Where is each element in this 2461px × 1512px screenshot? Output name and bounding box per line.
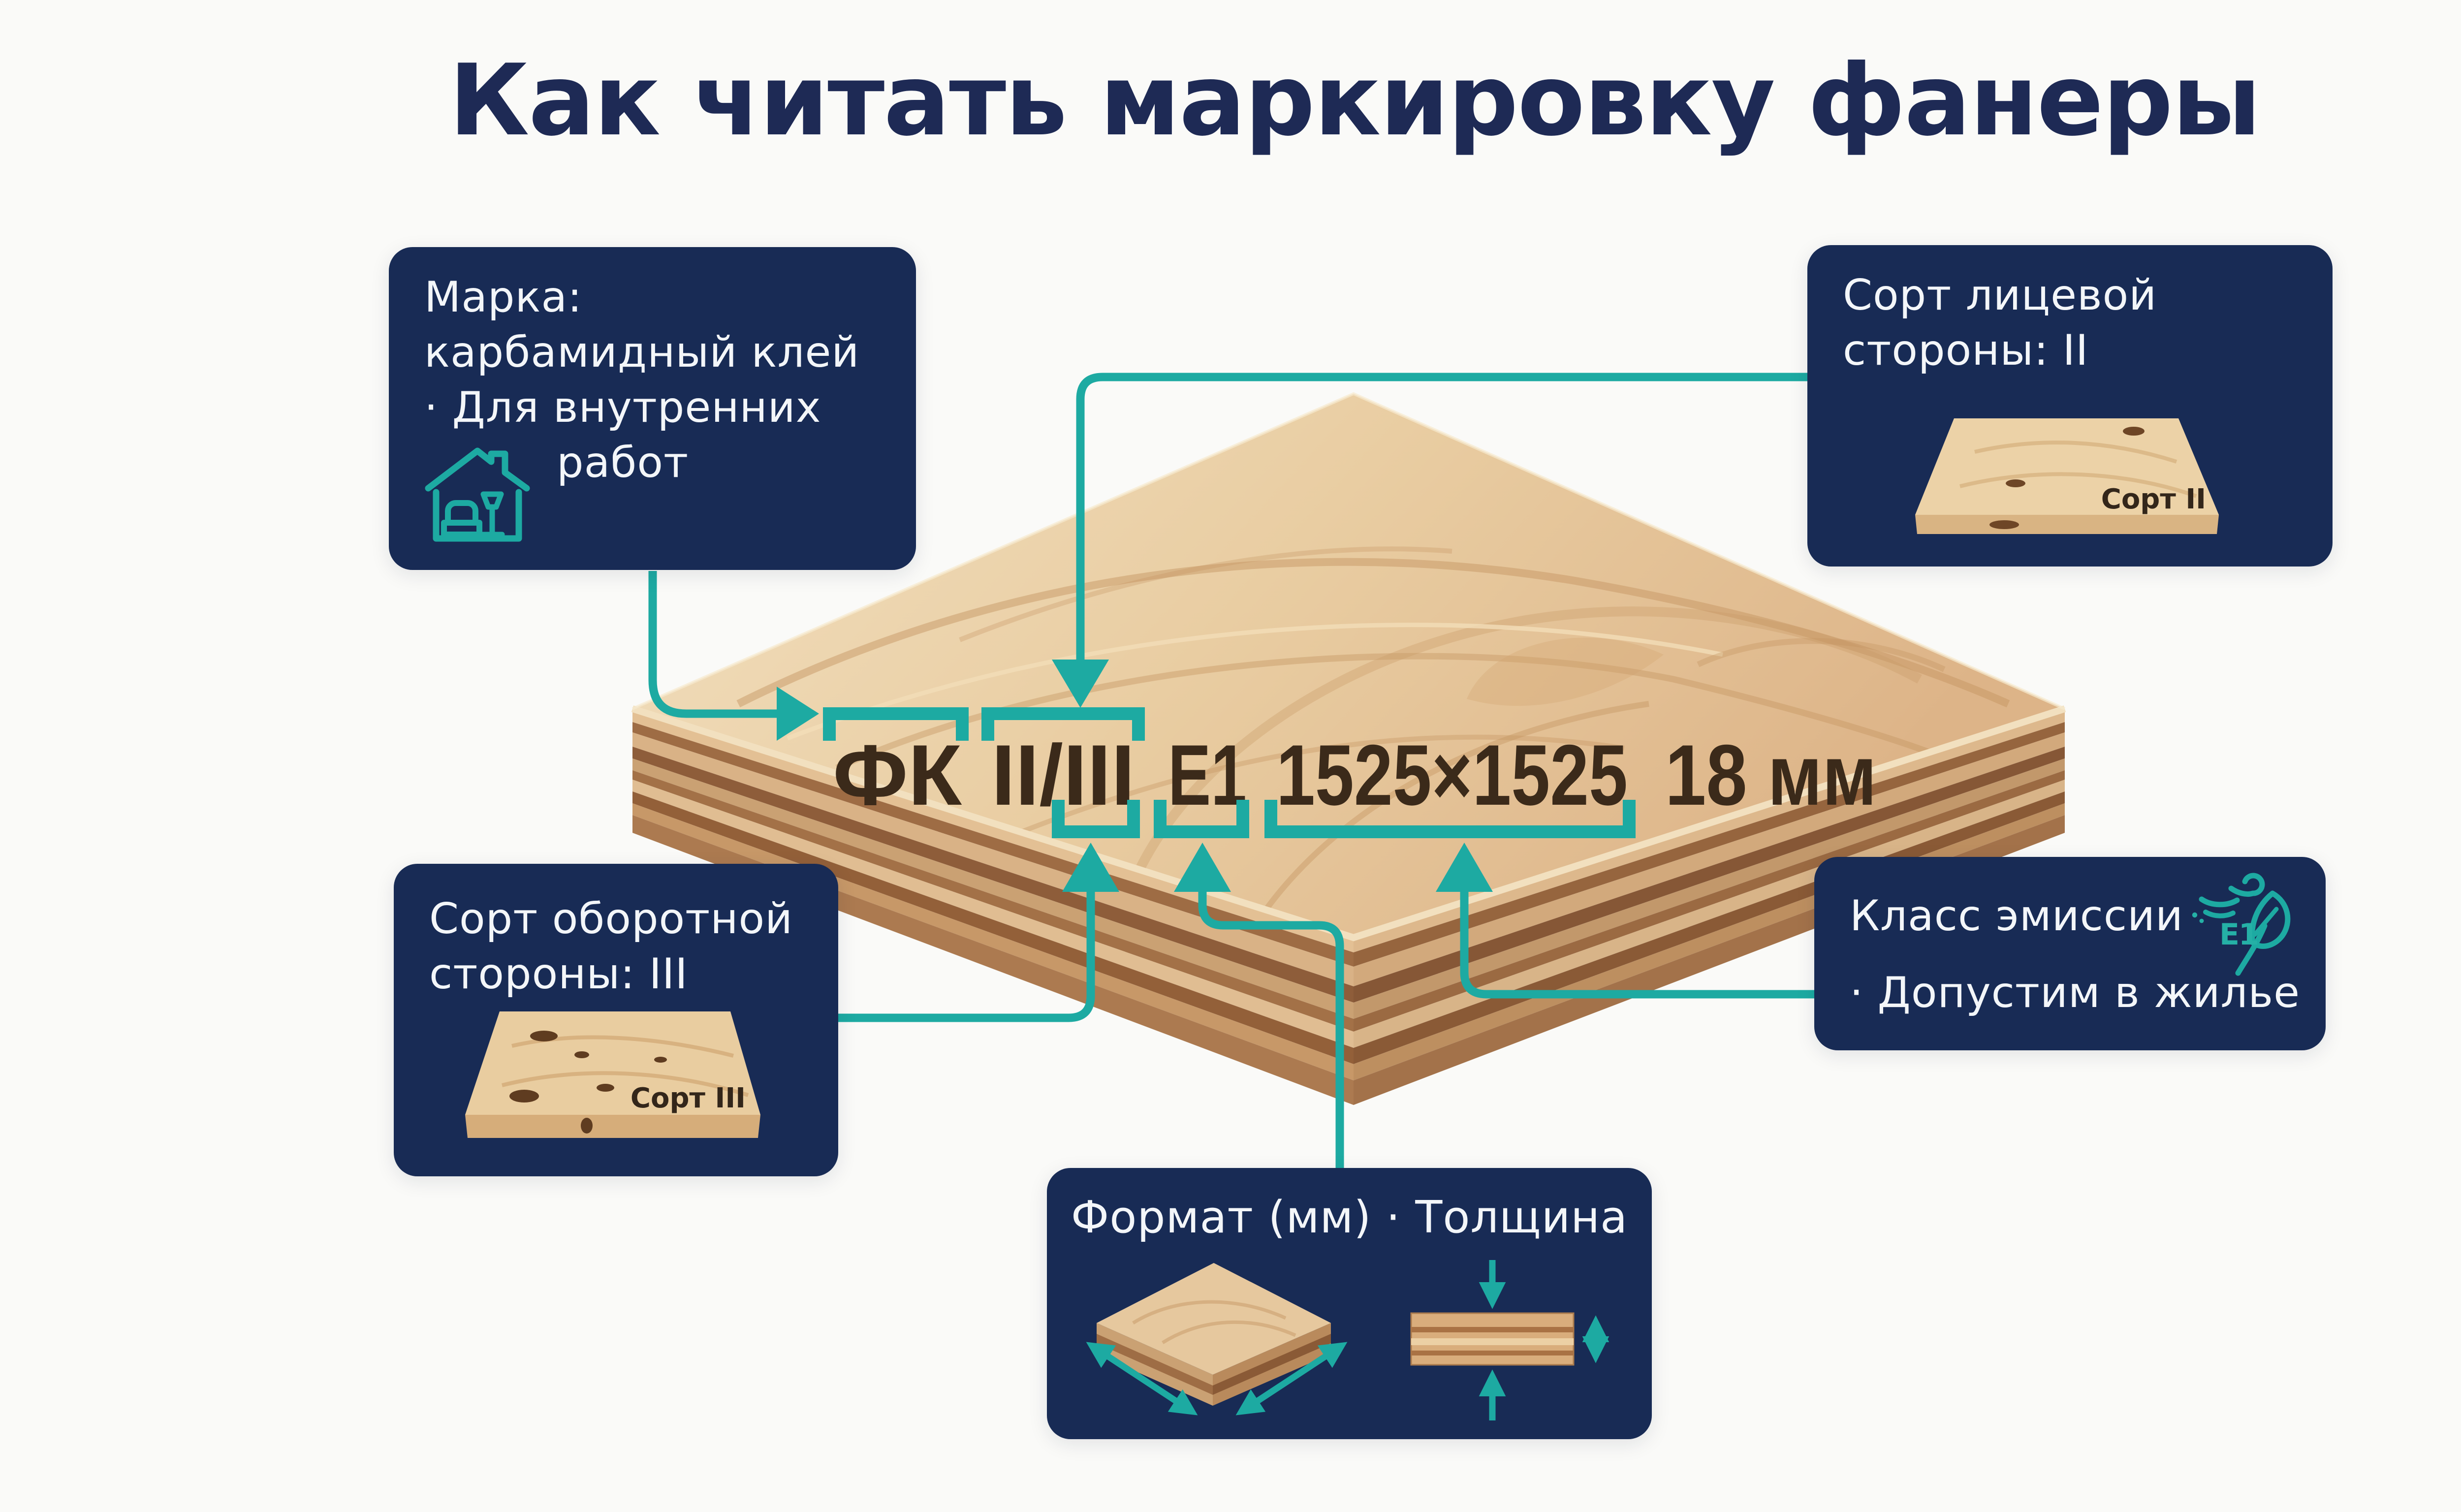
card-face-grade: Сорт лицевой стороны: II Сорт II	[1807, 245, 2333, 567]
card-brand-line2: карбамидный клей	[424, 325, 888, 380]
wind-dot	[2192, 913, 2197, 917]
wind-curl	[2231, 876, 2262, 894]
marking-brand: ФК	[833, 727, 962, 823]
thickness-icon	[1372, 1249, 1618, 1431]
knot	[509, 1090, 539, 1102]
card-back-grade-text: Сорт оборотной стороны: III	[394, 864, 838, 1002]
house-interior-icon	[420, 442, 538, 547]
knot	[1989, 520, 2019, 529]
card-face-grade-line1: Сорт лицевой	[1843, 268, 2305, 323]
card-emission: Класс эмиссии · Допустим в жилье E1	[1814, 857, 2326, 1050]
plank-ply	[1411, 1338, 1574, 1345]
back-grade-board-image: Сорт III	[458, 1002, 773, 1149]
board-label: Сорт II	[2101, 483, 2206, 515]
card-brand: Марка: карбамидный клей · Для внутренних…	[389, 247, 916, 570]
card-brand-line3: · Для внутренних	[424, 380, 888, 435]
wind-dot	[2200, 919, 2204, 923]
e1-badge-text: E1	[2219, 917, 2258, 952]
card-back-grade-line2: стороны: III	[429, 946, 811, 1002]
board-front-edge	[465, 1115, 760, 1138]
marking-thickness: 18 мм	[1665, 727, 1877, 823]
board-label: Сорт III	[631, 1082, 746, 1114]
card-face-grade-line2: стороны: II	[1843, 323, 2305, 378]
card-brand-line4: работ	[557, 435, 888, 490]
wind-wave	[2202, 899, 2237, 905]
knot	[581, 1118, 593, 1134]
house-roof-chimney	[428, 451, 527, 488]
card-brand-line1: Марка:	[424, 270, 888, 325]
card-format-title: Формат (мм) · Толщина	[1047, 1192, 1652, 1243]
face-grade-board-image: Сорт II	[1901, 393, 2236, 540]
knot	[2123, 427, 2145, 436]
e1-leaf-wind-icon: E1	[2182, 870, 2300, 978]
wind-wave	[2206, 912, 2233, 916]
marking-emission-class: Е1	[1168, 727, 1247, 823]
knot	[574, 1051, 589, 1058]
card-face-grade-text: Сорт лицевой стороны: II	[1807, 245, 2333, 378]
marking-format: 1525×1525	[1276, 727, 1628, 823]
plank-ply	[1411, 1327, 1574, 1332]
card-back-grade-line1: Сорт оборотной	[429, 891, 811, 946]
board-front-edge	[1915, 515, 2219, 534]
plank-ply	[1411, 1351, 1574, 1355]
sofa	[444, 503, 479, 538]
card-format: Формат (мм) · Толщина	[1047, 1168, 1652, 1439]
knot	[2006, 479, 2025, 487]
knot	[597, 1084, 614, 1092]
floor-lamp	[482, 494, 502, 535]
infographic-root: Как читать маркировку фанеры	[0, 0, 2461, 1512]
card-back-grade: Сорт оборотной стороны: III Сорт III	[394, 864, 838, 1176]
knot	[530, 1031, 558, 1041]
knot	[654, 1057, 667, 1063]
sheet-format-icon	[1074, 1249, 1359, 1431]
